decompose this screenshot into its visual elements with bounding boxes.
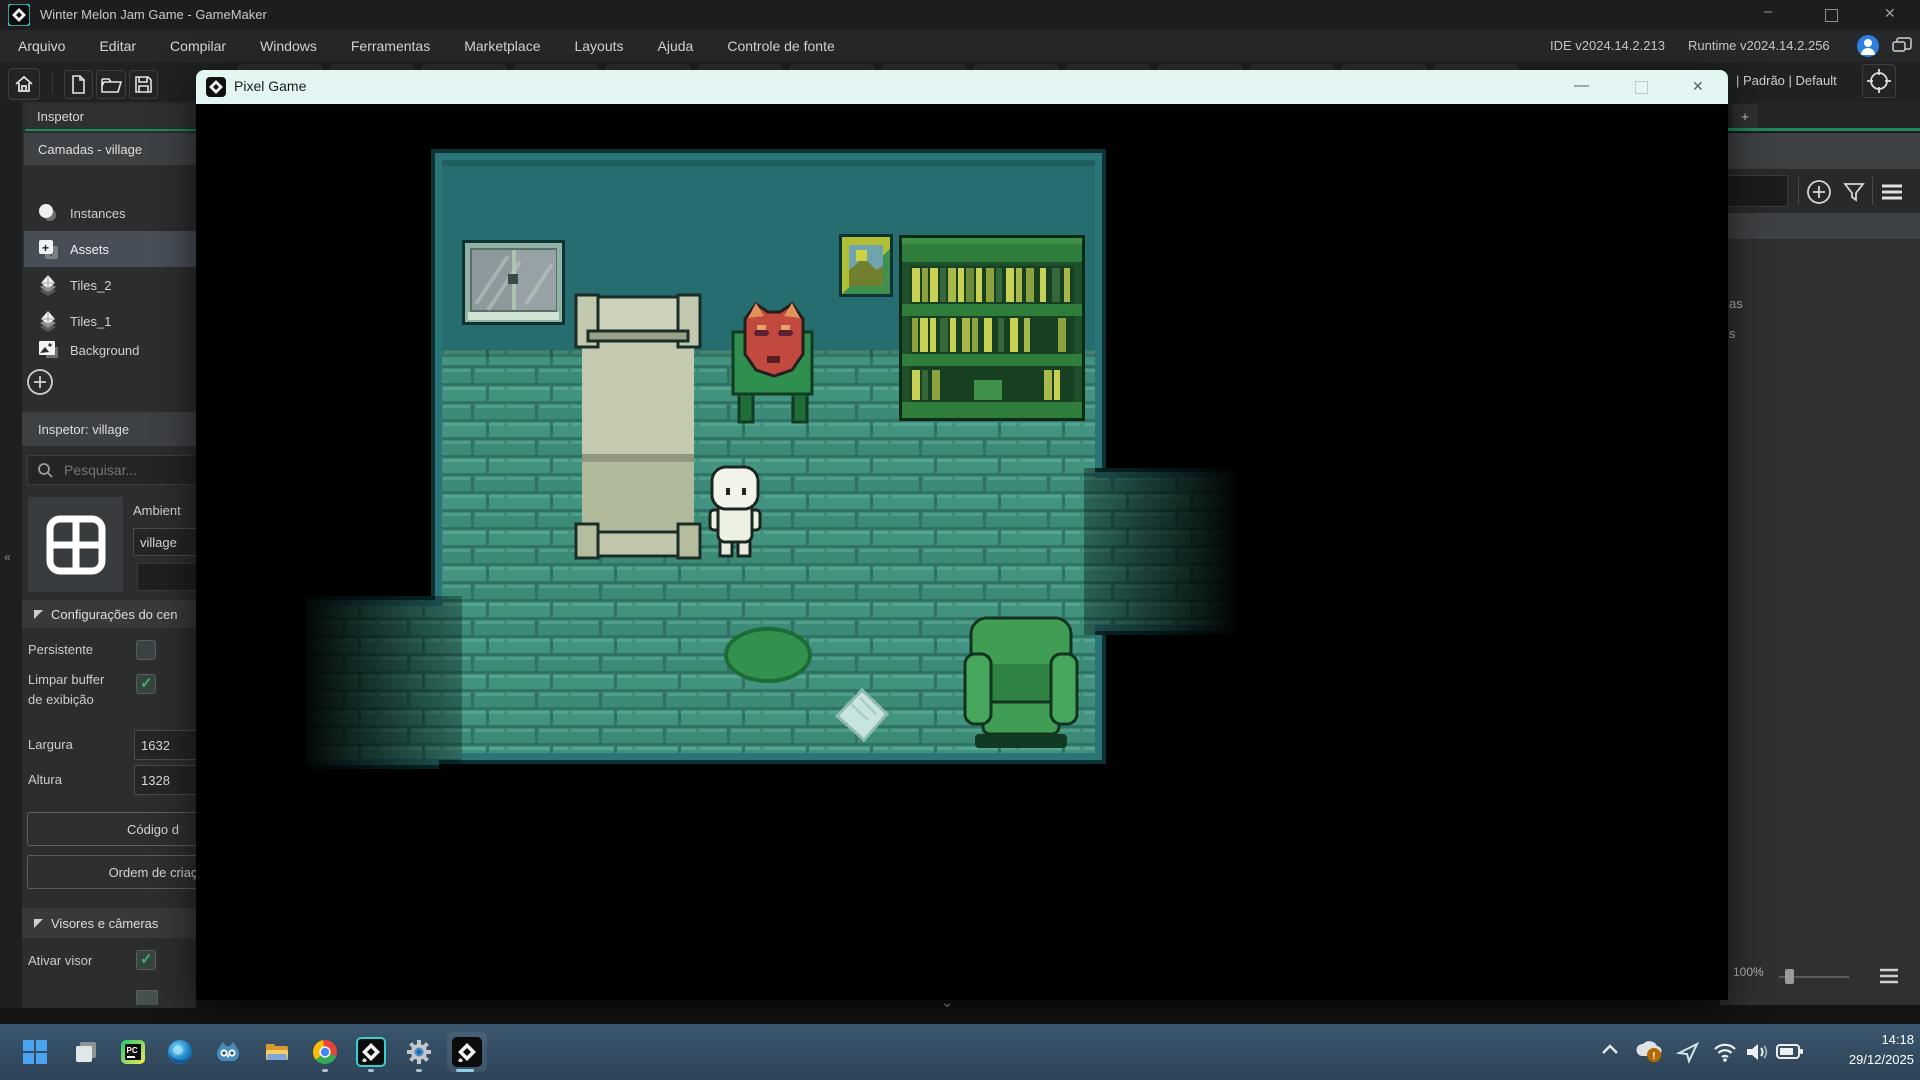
onedrive-alert-icon[interactable]: ! bbox=[1634, 1038, 1664, 1064]
clipped-text-fragment: s bbox=[1729, 326, 1736, 341]
filter-icon[interactable] bbox=[1842, 181, 1866, 203]
window-prop bbox=[462, 240, 565, 325]
persistent-label: Persistente bbox=[28, 642, 93, 657]
tray-chevron-up-icon[interactable] bbox=[1600, 1043, 1620, 1057]
add-layer-button[interactable] bbox=[26, 368, 54, 396]
clear-buffer-label-line1: Limpar buffer bbox=[28, 672, 104, 687]
menu-ajuda[interactable]: Ajuda bbox=[658, 38, 694, 54]
collapse-left-icon[interactable]: « bbox=[4, 550, 11, 564]
menu-compilar[interactable]: Compilar bbox=[170, 38, 226, 54]
new-project-button[interactable] bbox=[64, 70, 93, 99]
height-label: Altura bbox=[28, 772, 62, 787]
room-grid-icon bbox=[46, 515, 106, 575]
battery-icon[interactable] bbox=[1776, 1044, 1804, 1060]
toolbar-separator bbox=[52, 72, 53, 94]
runtime-version-label: Runtime v2024.14.2.256 bbox=[1688, 38, 1830, 53]
menu-arquivo[interactable]: Arquivo bbox=[18, 38, 65, 54]
enable-viewport-checkbox[interactable] bbox=[136, 950, 156, 970]
tiles-icon bbox=[36, 309, 60, 333]
account-avatar[interactable] bbox=[1857, 35, 1879, 57]
active-indicator-pill bbox=[456, 1069, 474, 1072]
svg-text:!: ! bbox=[1652, 1051, 1655, 1062]
ambient-label: Ambient bbox=[133, 503, 181, 518]
file-explorer-icon[interactable] bbox=[262, 1037, 292, 1067]
app-title: Winter Melon Jam Game - GameMaker bbox=[40, 7, 267, 22]
menu-ferramentas[interactable]: Ferramentas bbox=[351, 38, 430, 54]
right-subheader-band bbox=[1720, 213, 1920, 239]
right-search-input[interactable] bbox=[1720, 175, 1788, 207]
layout-preset-label: | Padrão | Default bbox=[1736, 73, 1837, 88]
maximize-icon[interactable] bbox=[1635, 81, 1648, 94]
clipped-text-fragment: as bbox=[1729, 296, 1743, 311]
close-window-icon[interactable]: ✕ bbox=[1884, 5, 1896, 22]
gamemaker-running-icon[interactable] bbox=[452, 1037, 482, 1067]
zoom-slider-handle[interactable] bbox=[1785, 969, 1794, 984]
app-titlebar: Winter Melon Jam Game - GameMaker – ✕ bbox=[0, 0, 1920, 30]
room-thumbnail[interactable] bbox=[28, 497, 123, 592]
add-tab-button[interactable]: + bbox=[1732, 104, 1758, 128]
collapse-triangle-icon bbox=[34, 610, 43, 619]
home-button[interactable] bbox=[8, 68, 40, 100]
tiles-icon bbox=[36, 273, 60, 297]
wifi-icon[interactable] bbox=[1712, 1041, 1738, 1063]
corridor-bottom-left bbox=[302, 596, 462, 769]
game-window-title: Pixel Game bbox=[234, 78, 306, 94]
save-project-button[interactable] bbox=[129, 70, 158, 99]
minimize-icon[interactable]: — bbox=[1574, 77, 1589, 94]
chrome-icon[interactable] bbox=[310, 1037, 340, 1067]
maximize-window-icon[interactable] bbox=[1825, 9, 1838, 22]
godot-icon[interactable] bbox=[213, 1037, 243, 1067]
add-circle-icon[interactable] bbox=[1806, 179, 1832, 205]
feedback-chat-icon[interactable] bbox=[1892, 36, 1914, 56]
desktop: Winter Melon Jam Game - GameMaker – ✕ Ar… bbox=[0, 0, 1920, 1080]
running-indicator-dot bbox=[368, 1069, 374, 1072]
pixel-game-scene bbox=[196, 104, 1728, 1000]
windows-start-button[interactable] bbox=[20, 1037, 50, 1067]
task-view-button[interactable] bbox=[71, 1037, 101, 1067]
picture-frame bbox=[839, 234, 893, 297]
clock-time[interactable]: 14:18 bbox=[1828, 1032, 1914, 1047]
separator bbox=[1872, 177, 1873, 205]
menu-hamburger-icon[interactable] bbox=[1878, 967, 1900, 985]
persistent-checkbox[interactable] bbox=[136, 640, 156, 660]
settings-gear-icon[interactable] bbox=[404, 1037, 434, 1067]
close-icon[interactable]: ✕ bbox=[1692, 78, 1704, 95]
volume-icon[interactable] bbox=[1744, 1041, 1770, 1063]
plant-creature bbox=[745, 303, 803, 376]
game-canvas[interactable] bbox=[196, 104, 1728, 1000]
width-label: Largura bbox=[28, 737, 73, 752]
assets-icon: + + bbox=[36, 237, 60, 261]
gamemaker-icon bbox=[206, 77, 226, 97]
separator bbox=[1798, 177, 1799, 205]
edge-icon[interactable] bbox=[165, 1037, 195, 1067]
bookshelf bbox=[899, 235, 1085, 421]
ide-version-label: IDE v2024.14.2.213 bbox=[1550, 38, 1665, 53]
menu-hamburger-icon[interactable] bbox=[1880, 183, 1904, 201]
background-icon bbox=[36, 339, 60, 362]
location-icon[interactable] bbox=[1676, 1040, 1700, 1064]
corridor-right bbox=[1084, 468, 1236, 635]
clear-buffer-checkbox[interactable] bbox=[136, 674, 156, 694]
svg-text:PC: PC bbox=[127, 1046, 138, 1055]
clock-date[interactable]: 29/12/2025 bbox=[1818, 1052, 1914, 1067]
target-layout-button[interactable] bbox=[1862, 64, 1896, 98]
clipped-checkbox bbox=[136, 990, 158, 1005]
enable-viewport-label: Ativar visor bbox=[28, 953, 92, 968]
instances-icon bbox=[36, 201, 60, 225]
collapse-triangle-icon bbox=[34, 919, 43, 928]
running-indicator-dot bbox=[416, 1069, 422, 1072]
menu-windows[interactable]: Windows bbox=[260, 38, 317, 54]
pycharm-icon[interactable]: PC bbox=[118, 1037, 148, 1067]
menu-marketplace[interactable]: Marketplace bbox=[464, 38, 540, 54]
gamemaker-taskbar-icon[interactable] bbox=[356, 1037, 386, 1067]
right-tab-accent bbox=[1720, 128, 1920, 131]
clear-buffer-label-line2: de exibição bbox=[28, 692, 94, 707]
bed bbox=[576, 295, 700, 558]
armchair bbox=[965, 618, 1077, 748]
menu-editar[interactable]: Editar bbox=[99, 38, 136, 54]
minimize-window-icon[interactable]: – bbox=[1764, 3, 1772, 20]
svg-text:+: + bbox=[42, 241, 49, 255]
game-window-titlebar[interactable]: Pixel Game — ✕ bbox=[196, 70, 1728, 104]
rug bbox=[726, 629, 810, 681]
search-icon bbox=[36, 461, 54, 479]
right-body bbox=[1720, 239, 1920, 1005]
menu-controle-fonte[interactable]: Controle de fonte bbox=[727, 38, 834, 54]
open-project-button[interactable] bbox=[96, 70, 126, 99]
game-window: Pixel Game — ✕ bbox=[196, 70, 1728, 1000]
gamemaker-app-icon bbox=[8, 4, 30, 26]
running-indicator-dot bbox=[322, 1069, 328, 1072]
zoom-level-label: 100% bbox=[1733, 965, 1764, 979]
search-input[interactable] bbox=[62, 461, 216, 479]
menu-layouts[interactable]: Layouts bbox=[574, 38, 623, 54]
right-header-band bbox=[1720, 133, 1920, 169]
